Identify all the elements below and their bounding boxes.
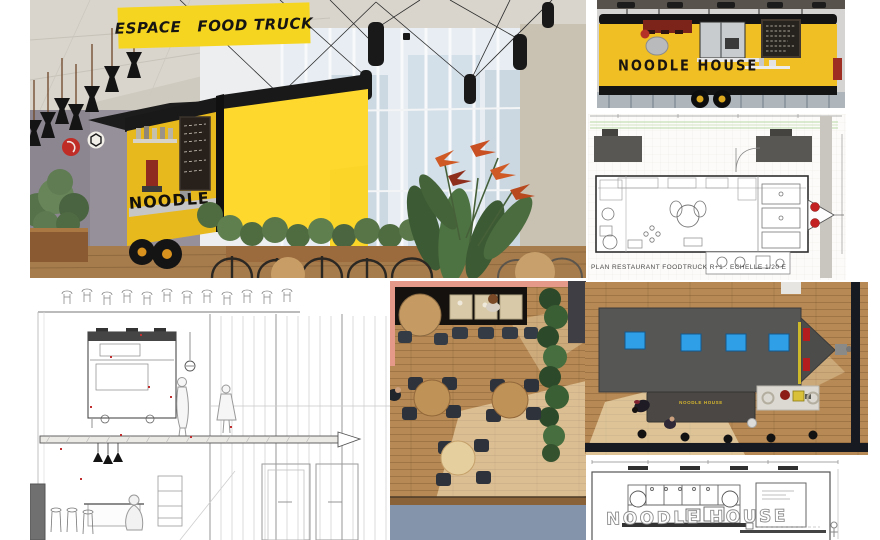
mezzanine-slab xyxy=(40,432,360,447)
section-drawing-panel xyxy=(30,286,390,540)
overhead-truck-panel: NOODLE HOUSE xyxy=(585,282,868,455)
frame-bottom xyxy=(585,443,868,452)
prep-counter xyxy=(757,386,819,410)
elevation-drawing-panel: NOODLE HOUSE xyxy=(588,459,845,540)
frame-right xyxy=(851,282,860,446)
plan-art xyxy=(588,114,846,280)
truck-plan xyxy=(596,176,808,252)
white-pillar xyxy=(781,282,801,294)
overhead-dining-panel xyxy=(390,281,586,540)
title-word-foodtruck: FOOD TRUCK xyxy=(197,14,313,35)
salmon-band-top xyxy=(390,281,586,287)
truck-side-art xyxy=(597,0,845,108)
presentation-board: NOODLE HOUSE xyxy=(0,0,880,540)
people-figures xyxy=(177,378,236,437)
section-pendant xyxy=(185,332,195,371)
overhead-counter-sign: NOODLE HOUSE xyxy=(647,400,755,405)
counter-leg xyxy=(748,419,757,428)
salmon-band-left xyxy=(390,281,395,366)
render-interior-panel: NOODLE HOUSE xyxy=(30,0,586,278)
elevation-truck-name: NOODLE HOUSE xyxy=(606,506,788,529)
section-art xyxy=(30,286,390,540)
corridor-band xyxy=(820,116,832,278)
cafe-table-right xyxy=(515,252,555,278)
truck-name-side: NOODLE HOUSE xyxy=(618,58,748,75)
upper-chairs-row xyxy=(38,289,300,312)
steel-pot xyxy=(646,37,668,55)
title-word-espace: ESPACE xyxy=(114,17,181,37)
hedge-mid xyxy=(197,202,422,262)
plan-drawing-panel: PLAN RESTAURANT FOODTRUCK R+1 . ECHELLE … xyxy=(588,114,846,280)
truck-section xyxy=(88,328,176,428)
walkway xyxy=(390,497,586,540)
dark-wall-band xyxy=(568,281,586,343)
overhead-dining-art xyxy=(390,281,586,540)
small-figure xyxy=(830,522,838,537)
overhead-truck-art xyxy=(585,282,868,455)
plan-caption: PLAN RESTAURANT FOODTRUCK R+1 . ECHELLE … xyxy=(591,264,786,271)
roof-vents xyxy=(628,466,798,470)
title-label: ESPACE FOOD TRUCK xyxy=(117,2,310,48)
red-box xyxy=(833,58,842,80)
order-counter xyxy=(647,392,755,422)
menu-chalkboard xyxy=(762,20,800,57)
planter-left xyxy=(30,169,89,262)
dimension-line xyxy=(592,460,838,464)
render-truck-side-panel: NOODLE HOUSE xyxy=(597,0,845,108)
